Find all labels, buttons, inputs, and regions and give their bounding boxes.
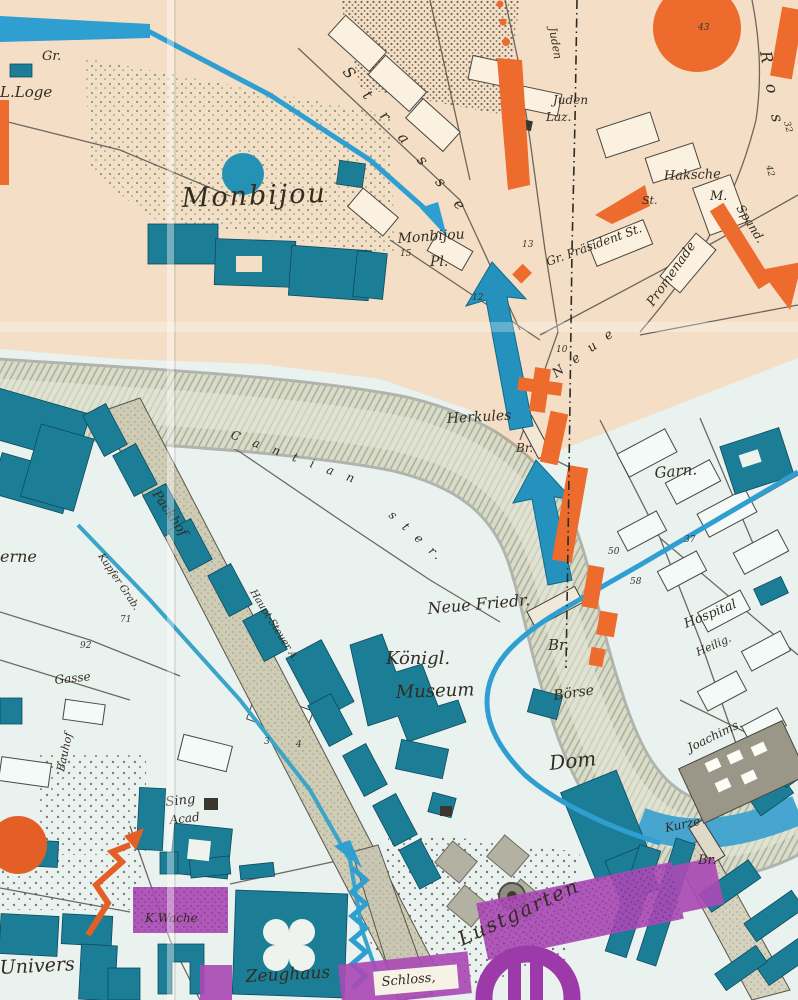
house-number: 10 <box>556 345 568 355</box>
house-number: 12 <box>472 293 484 303</box>
label-monbijou: Monbijou <box>180 178 327 214</box>
label-univers: Univers <box>0 953 76 979</box>
house-number: 13 <box>522 240 534 250</box>
label-gr: Gr. <box>42 49 61 64</box>
house-number: 15 <box>400 249 412 259</box>
house-number: 50 <box>608 547 620 557</box>
map-canvas[interactable]: Gr. L.Loge Monbijou Monbijou Pl. S t r a… <box>0 0 798 1000</box>
label-st: St. <box>642 194 657 207</box>
building-block <box>148 224 218 264</box>
label-koenigl: Königl. <box>385 648 450 669</box>
label-br-se: Br. <box>697 853 716 868</box>
house-number: 37 <box>684 535 696 545</box>
house-number: 43 <box>697 23 710 33</box>
label-dom: Dom <box>547 746 597 775</box>
house-number: 92 <box>80 641 92 651</box>
label-nf-br: Br. <box>547 636 569 654</box>
label-garn: Garn. <box>654 460 698 482</box>
label-juden: Juden <box>550 93 588 107</box>
label-museum: Museum <box>394 679 474 703</box>
label-herkules-br: Br. <box>515 441 533 455</box>
house-number: 3 <box>264 737 270 747</box>
historical-city-map: Gr. L.Loge Monbijou Monbijou Pl. S t r a… <box>0 0 798 1000</box>
house-number: 4 <box>295 740 302 750</box>
label-haksche: Haksche <box>663 167 722 184</box>
label-pl: Pl. <box>429 254 448 270</box>
label-laz: Laz. <box>545 110 571 124</box>
house-number: 58 <box>630 577 642 587</box>
label-loge: L.Loge <box>0 83 52 101</box>
label-m: M. <box>709 189 727 204</box>
label-kaserne: erne <box>0 547 37 566</box>
house-number: 71 <box>120 615 131 625</box>
